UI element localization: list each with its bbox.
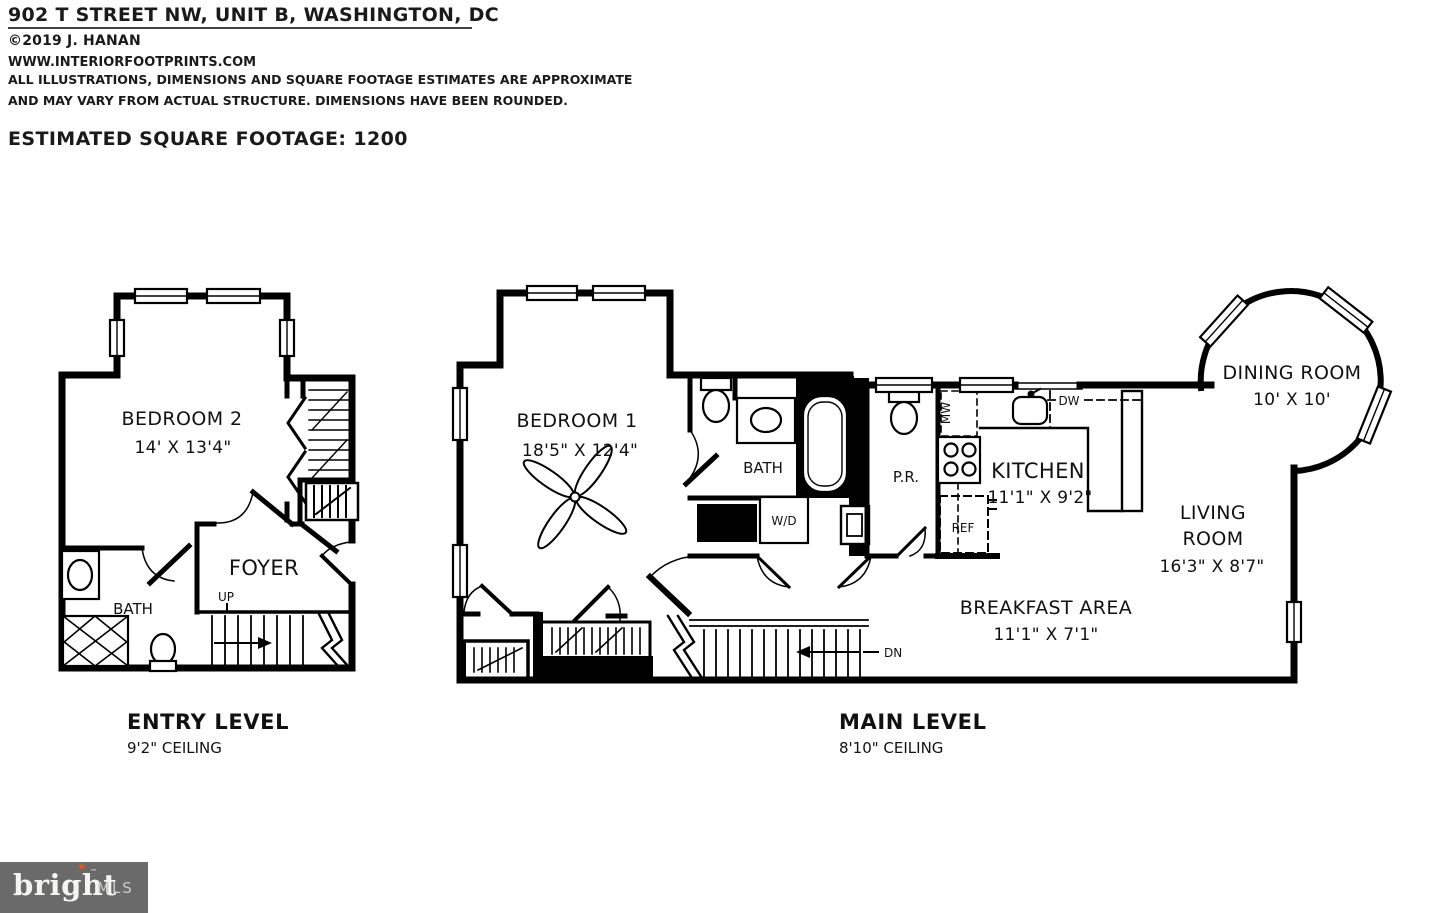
bedroom2-dims: 14' X 13'4"	[135, 438, 232, 458]
dn-label: DN	[884, 646, 902, 660]
entry-bath-angled-wall	[150, 546, 189, 583]
window	[1357, 386, 1391, 443]
bedroom1-dims: 18'5" X 12'4"	[522, 441, 638, 461]
bedroom1-label: BEDROOM 1	[517, 410, 638, 432]
entry-bath-sink-icon	[62, 551, 99, 599]
kitchen-passthrough	[1015, 383, 1082, 389]
window	[135, 289, 187, 303]
living-dims: 16'3" X 8'7"	[1159, 557, 1264, 577]
logo-star-icon: ✦	[76, 860, 87, 875]
up-label: UP	[218, 590, 234, 604]
dining-dims: 10' X 10'	[1253, 390, 1331, 410]
dishwasher-label: DW	[1058, 394, 1079, 408]
bedroom1-closet-door1	[482, 586, 512, 614]
closet-hatch	[309, 390, 348, 478]
entry-foyer-left-wall	[197, 524, 214, 612]
entry-level-title: ENTRY LEVEL	[127, 710, 289, 734]
entry-toilet-icon	[150, 634, 176, 671]
floorplan-canvas: BEDROOM 2 14' X 13'4" FOYER BATH UP ENTR…	[0, 0, 1440, 913]
logo-suffix-text: MLS	[97, 879, 134, 897]
window	[207, 289, 260, 303]
entry-level-ceiling: 9'2" CEILING	[127, 739, 222, 757]
stairs-down	[704, 630, 860, 677]
main-level-title: MAIN LEVEL	[839, 710, 987, 734]
dn-arrow-head	[796, 646, 810, 658]
stairs-up	[212, 616, 303, 664]
stove-icon	[938, 437, 980, 483]
bedroom1-closet-door2	[575, 587, 608, 620]
window	[527, 286, 577, 300]
living-label-1: LIVING	[1180, 502, 1246, 524]
main-level-plan: BEDROOM 1 18'5" X 12'4" BATH W/D P.R. MW…	[453, 286, 1391, 757]
front-closet-a	[464, 641, 528, 676]
floorplan-page: 902 T STREET NW, UNIT B, WASHINGTON, DC …	[0, 0, 1440, 913]
stairs-up-break	[318, 612, 348, 666]
entry-bedroom-door-arc	[216, 492, 253, 523]
window	[110, 320, 124, 356]
logo-trademark: ™	[90, 868, 97, 876]
refrigerator-label: REF	[952, 521, 975, 535]
window	[593, 286, 645, 300]
entry-stoop-steps	[306, 483, 358, 520]
bedroom2-label: BEDROOM 2	[122, 408, 243, 430]
window	[1320, 287, 1373, 333]
stair-hall-wall	[650, 577, 688, 613]
foyer-label: FOYER	[229, 556, 299, 580]
kitchen-sink-icon	[1013, 389, 1047, 424]
breakfast-label: BREAKFAST AREA	[960, 597, 1132, 619]
window	[876, 378, 932, 392]
entry-level-plan: BEDROOM 2 14' X 13'4" FOYER BATH UP ENTR…	[62, 289, 358, 757]
window	[453, 545, 467, 597]
stair-hall-arc	[650, 556, 696, 577]
kitchen-peninsula	[1122, 391, 1142, 511]
powder-room-label: P.R.	[893, 468, 919, 486]
main-level-ceiling: 8'10" CEILING	[839, 739, 943, 757]
front-closet-b	[543, 622, 650, 658]
main-bath-label: BATH	[743, 459, 783, 477]
window	[280, 320, 294, 356]
bathtub-icon	[803, 396, 847, 492]
up-arrow-head	[258, 637, 272, 649]
powder-room-door	[897, 528, 925, 556]
main-bath-sink-icon	[737, 398, 795, 443]
window	[960, 378, 1013, 392]
bright-mls-logo: bright ✦ ™ MLS	[0, 862, 148, 913]
window	[453, 388, 467, 440]
dining-label: DINING ROOM	[1223, 362, 1362, 384]
living-label-2: ROOM	[1182, 528, 1243, 550]
entry-bath-label: BATH	[113, 600, 153, 618]
powder-toilet-icon	[889, 390, 919, 434]
window	[1287, 602, 1301, 642]
breakfast-dims: 11'1" X 7'1"	[993, 625, 1098, 645]
kitchen-dims: 11'1" X 9'2"	[987, 488, 1092, 508]
kitchen-label: KITCHEN	[991, 459, 1085, 483]
window	[1200, 296, 1248, 347]
main-bath-toilet-icon	[701, 378, 731, 422]
entry-shower-icon	[63, 616, 128, 666]
entry-front-door-leaf	[322, 556, 352, 585]
microwave-label: MW	[939, 402, 953, 424]
washer-dryer-label: W/D	[771, 514, 796, 528]
stairs-down-rail	[690, 620, 868, 626]
